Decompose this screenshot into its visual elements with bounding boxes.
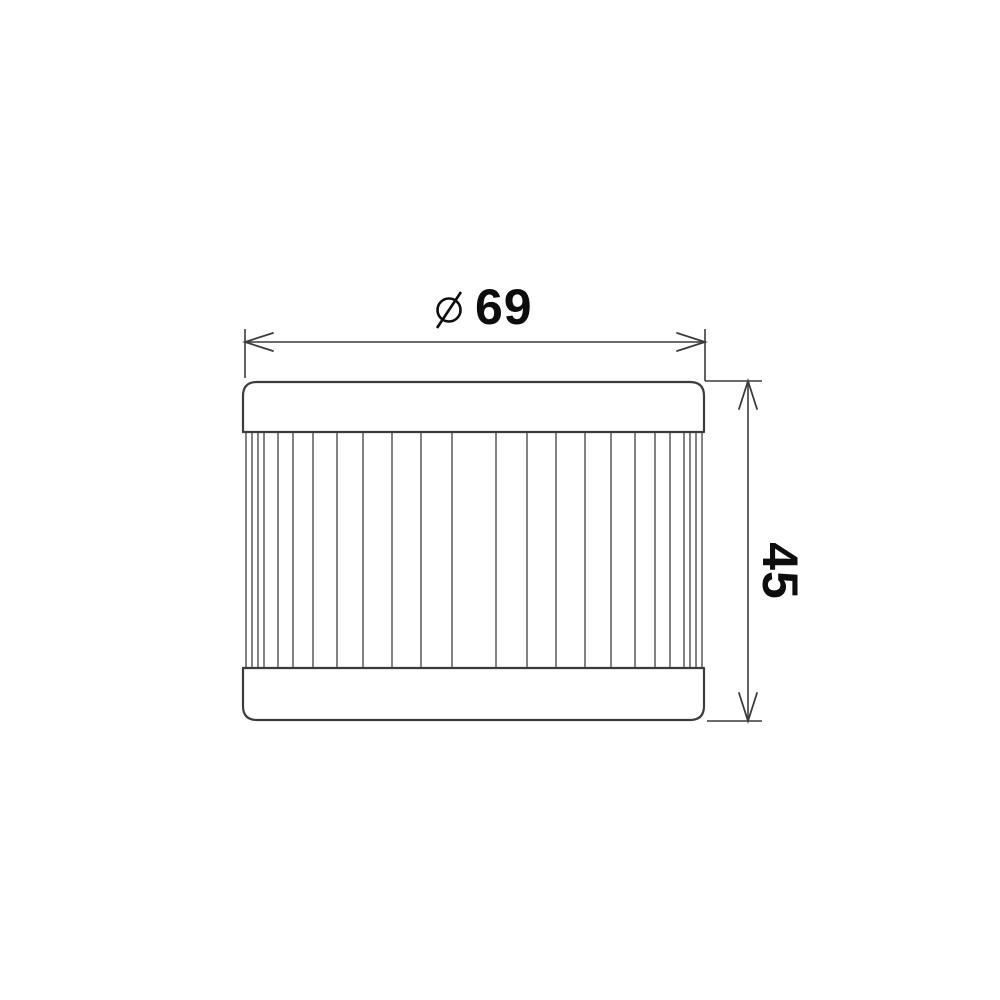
filter-body	[243, 382, 704, 720]
diameter-dimension	[245, 329, 705, 381]
diameter-dimension-label: 69	[433, 284, 533, 330]
height-value: 45	[752, 542, 808, 600]
technical-drawing-canvas: 69 45	[0, 0, 1000, 1000]
diameter-symbol-icon	[433, 284, 467, 330]
diameter-value: 69	[475, 284, 533, 330]
height-dimension-label: 45	[757, 542, 803, 600]
top-end-cap	[243, 382, 704, 432]
filter-drawing	[0, 0, 1000, 1000]
bottom-end-cap	[243, 668, 704, 720]
pleat-lines	[246, 432, 702, 668]
